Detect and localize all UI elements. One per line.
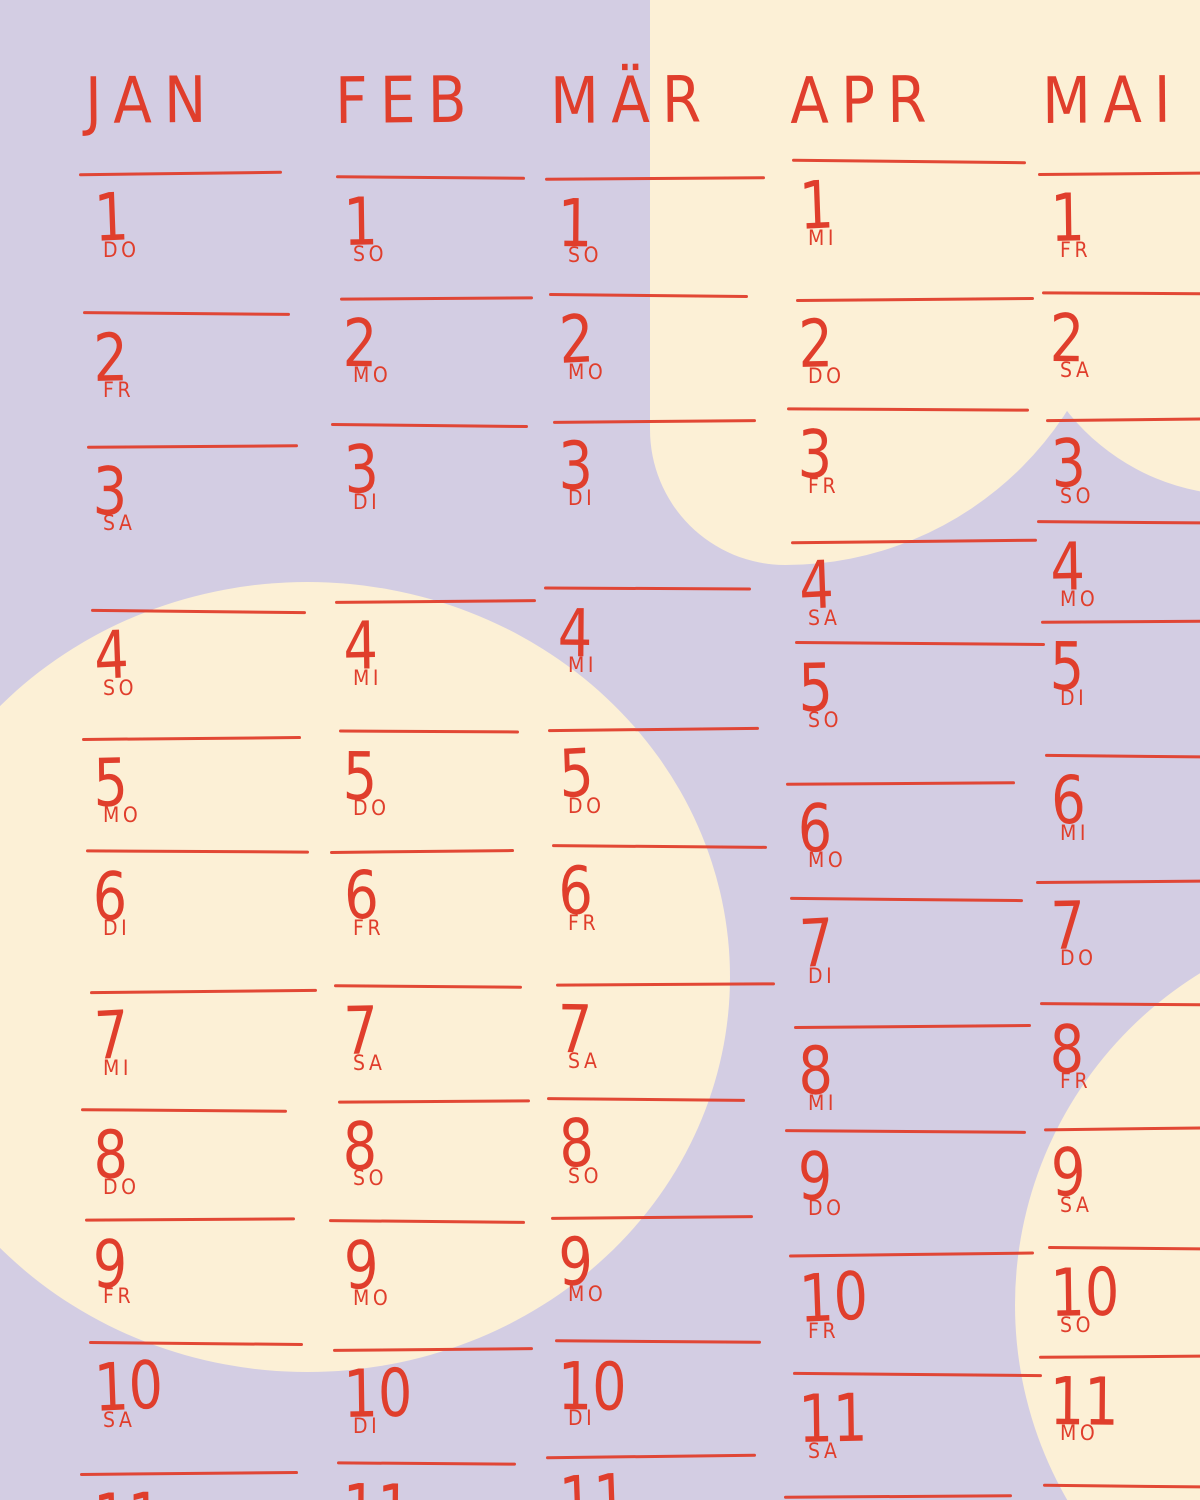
day-row: 4SO: [85, 610, 360, 613]
day-rule: [334, 984, 522, 988]
day-rule: [551, 1215, 753, 1220]
day-rule: [1045, 754, 1200, 759]
day-rule: [89, 1341, 303, 1346]
day-weekday-label: DI: [808, 966, 835, 987]
day-row: 2SA: [1042, 292, 1200, 295]
day-rule: [795, 641, 1045, 646]
month-column-mai: MAI1FR2SA3SO4MO5DI6MI7DO8FR9SA10SO11MO12: [1042, 0, 1200, 1500]
day-row: 8DO: [85, 1109, 360, 1112]
day-row: 9SA: [1042, 1127, 1200, 1130]
day-weekday-label: MO: [568, 362, 606, 383]
day-weekday-label: DI: [103, 918, 130, 939]
day-row: 5DI: [1042, 620, 1200, 623]
day-row: 12: [1042, 1485, 1200, 1488]
day-rule: [1036, 879, 1200, 884]
day-row: 9FR: [85, 1218, 360, 1221]
day-row: 1SO: [550, 177, 820, 180]
day-rule: [340, 296, 533, 300]
day-rule: [1039, 1354, 1200, 1359]
day-weekday-label: MI: [103, 1058, 132, 1079]
day-weekday-label: DI: [568, 1408, 595, 1429]
day-weekday-label: SA: [808, 1441, 840, 1462]
day-rule: [796, 297, 1034, 302]
day-weekday-label: DO: [353, 798, 390, 819]
day-weekday-label: MO: [353, 365, 391, 386]
day-row: 6FR: [550, 845, 820, 848]
calendar-poster: JAN1DO2FR3SA4SO5MO6DI7MI8DO9FR10SA11FEB1…: [0, 0, 1200, 1500]
day-rule: [336, 175, 525, 180]
day-rule: [83, 311, 290, 316]
day-row: 4MI: [335, 600, 585, 603]
month-column-mar: MÄR1SO2MO3DI4MI5DO6FR7SA8SO9MO10DI11: [550, 0, 820, 1500]
day-rule: [548, 727, 759, 732]
day-rule: [333, 1347, 533, 1352]
day-rule: [1042, 291, 1200, 295]
day-rule: [794, 1024, 1031, 1029]
day-rule: [791, 539, 1037, 545]
day-weekday-label: SO: [1060, 1315, 1094, 1336]
day-weekday-label: FR: [568, 913, 599, 934]
day-weekday-label: MI: [1060, 823, 1089, 844]
day-rule: [546, 1454, 756, 1460]
day-weekday-label: SO: [353, 244, 387, 265]
day-weekday-label: SA: [353, 1053, 385, 1074]
day-weekday-label: FR: [103, 1286, 134, 1307]
day-row: 4MO: [1042, 521, 1200, 524]
day-weekday-label: SO: [568, 245, 602, 266]
day-weekday-label: SA: [103, 1410, 135, 1431]
day-weekday-label: FR: [103, 380, 134, 401]
day-weekday-label: DO: [103, 240, 140, 261]
day-row: 11MO: [1042, 1355, 1200, 1358]
day-rule: [1038, 171, 1200, 176]
day-number: 12: [1050, 1495, 1121, 1500]
day-weekday-label: FR: [808, 1321, 839, 1342]
day-weekday-label: MI: [353, 668, 382, 689]
day-weekday-label: SO: [353, 1168, 387, 1189]
day-row: 7MI: [85, 990, 360, 993]
day-rule: [329, 1219, 525, 1224]
day-row: 10SO: [1042, 1247, 1200, 1250]
day-rule: [785, 1129, 1026, 1134]
day-row: 1DO: [85, 172, 360, 175]
day-rule: [1048, 1246, 1200, 1251]
day-weekday-label: SO: [808, 710, 842, 731]
day-rule: [790, 897, 1023, 902]
day-row: 3DI: [335, 424, 585, 427]
day-weekday-label: DO: [568, 796, 605, 817]
day-row: 6FR: [335, 850, 585, 853]
day-rule: [80, 1471, 298, 1476]
day-row: 9MO: [335, 1220, 585, 1223]
day-rule: [87, 444, 298, 448]
day-weekday-label: MO: [808, 850, 846, 871]
day-row: 7SA: [550, 983, 820, 986]
day-weekday-label: FR: [808, 476, 839, 497]
day-row: 10DI: [335, 1348, 585, 1351]
month-column-feb: FEB1SO2MO3DI4MI5DO6FR7SA8SO9MO10DI11: [335, 0, 585, 1500]
month-header-jan: JAN: [85, 69, 219, 134]
day-rule: [544, 586, 751, 590]
day-weekday-label: MO: [1060, 589, 1098, 610]
day-row: 8SO: [550, 1098, 820, 1101]
day-row: 6MI: [1042, 755, 1200, 758]
day-row: 10SA: [85, 1342, 360, 1345]
day-weekday-label: DI: [353, 492, 380, 513]
day-rule: [81, 1108, 287, 1113]
day-weekday-label: FR: [353, 918, 384, 939]
day-row: 9MO: [550, 1216, 820, 1219]
day-rule: [792, 159, 1026, 164]
day-weekday-label: DO: [103, 1177, 140, 1198]
day-number: 11: [343, 1476, 412, 1500]
day-row: 3SO: [1042, 418, 1200, 421]
day-rule: [86, 849, 309, 853]
day-rule: [545, 176, 765, 181]
day-rule: [787, 407, 1029, 411]
day-rule: [1040, 1002, 1200, 1007]
day-row: 2FR: [85, 312, 360, 315]
day-row: 10DI: [550, 1340, 820, 1343]
day-weekday-label: MO: [353, 1288, 391, 1309]
day-rule: [547, 1097, 745, 1102]
day-weekday-label: MO: [1060, 1423, 1098, 1444]
day-rule: [330, 849, 514, 854]
day-weekday-label: MI: [568, 655, 597, 676]
day-rule: [553, 419, 756, 424]
day-rule: [337, 1461, 516, 1465]
day-weekday-label: SA: [568, 1051, 600, 1072]
day-row: 4MI: [550, 587, 820, 590]
day-row: 7SA: [335, 985, 585, 988]
day-number: 11: [93, 1485, 163, 1500]
day-rule: [339, 730, 519, 734]
day-rule: [556, 982, 775, 986]
day-rule: [552, 844, 767, 849]
day-rule: [1043, 1484, 1200, 1489]
day-row: 5DO: [550, 728, 820, 731]
day-weekday-label: DO: [808, 1198, 845, 1219]
day-rule: [91, 609, 306, 614]
day-row: 6DI: [85, 850, 360, 853]
day-weekday-label: MO: [568, 1284, 606, 1305]
day-weekday-label: DI: [353, 1416, 380, 1437]
day-rule: [789, 1252, 1034, 1258]
day-weekday-label: SO: [103, 678, 137, 699]
day-rule: [338, 1099, 530, 1103]
day-row: 8FR: [1042, 1003, 1200, 1006]
day-row: 8SO: [335, 1100, 585, 1103]
day-weekday-label: SO: [1060, 486, 1094, 507]
day-row: 5MO: [85, 737, 360, 740]
day-weekday-label: SA: [1060, 1195, 1092, 1216]
day-rule: [784, 1494, 1012, 1499]
day-weekday-label: MO: [103, 805, 141, 826]
day-weekday-label: FR: [1060, 1071, 1091, 1092]
day-weekday-label: DI: [1060, 688, 1087, 709]
day-rule: [549, 293, 748, 298]
day-rule: [335, 599, 536, 604]
day-rule: [1041, 619, 1200, 623]
day-rule: [90, 989, 317, 994]
day-weekday-label: MI: [808, 1093, 837, 1114]
day-row: 2MO: [550, 294, 820, 297]
month-header-mai: MAI: [1042, 69, 1183, 134]
day-rule: [1037, 520, 1200, 525]
day-rule: [1046, 417, 1200, 422]
day-row: 11: [550, 1455, 820, 1458]
day-weekday-label: SA: [1060, 360, 1092, 381]
day-row: 7DO: [1042, 880, 1200, 883]
day-rule: [331, 423, 528, 428]
day-weekday-label: SA: [103, 513, 135, 534]
day-row: 1FR: [1042, 172, 1200, 175]
day-row: 3DI: [550, 420, 820, 423]
day-weekday-label: DO: [1060, 948, 1097, 969]
day-rule: [793, 1372, 1042, 1377]
month-header-feb: FEB: [335, 69, 479, 134]
day-row: 11: [85, 1472, 360, 1475]
day-weekday-label: SO: [568, 1166, 602, 1187]
day-rule: [555, 1339, 761, 1343]
day-weekday-label: MI: [808, 228, 837, 249]
month-header-apr: APR: [790, 69, 939, 134]
day-rule: [786, 781, 1015, 785]
day-number: 11: [558, 1465, 629, 1500]
day-rule: [1044, 1126, 1200, 1132]
day-rule: [82, 736, 301, 741]
day-weekday-label: DI: [568, 488, 595, 509]
day-row: 2MO: [335, 297, 585, 300]
month-column-jan: JAN1DO2FR3SA4SO5MO6DI7MI8DO9FR10SA11: [85, 0, 360, 1500]
day-weekday-label: SA: [808, 608, 840, 629]
day-row: 11: [335, 1462, 585, 1465]
day-weekday-label: FR: [1060, 240, 1091, 261]
day-weekday-label: DO: [808, 366, 845, 387]
day-row: 3SA: [85, 445, 360, 448]
day-rule: [85, 1217, 295, 1221]
month-header-mar: MÄR: [550, 68, 714, 134]
day-rule: [79, 171, 282, 176]
